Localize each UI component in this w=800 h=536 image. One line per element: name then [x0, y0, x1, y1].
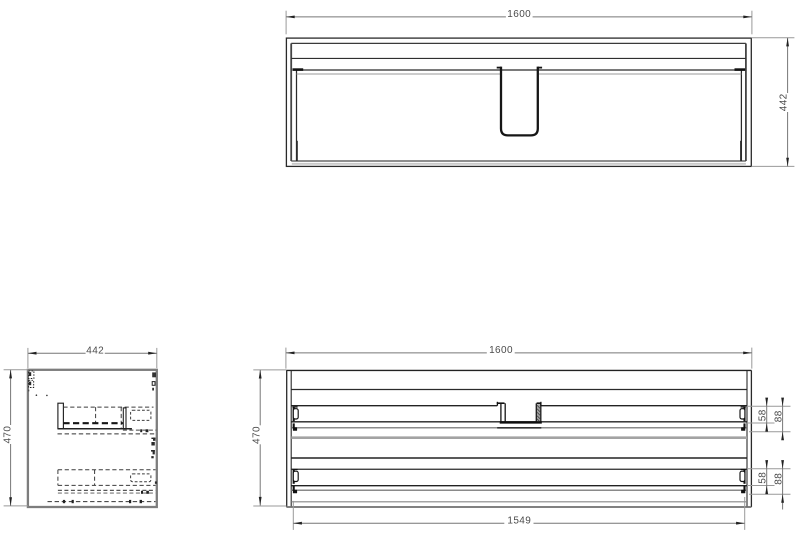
svg-text:470: 470 [2, 426, 13, 444]
svg-text:58: 58 [757, 409, 768, 421]
svg-text:1600: 1600 [489, 345, 513, 356]
svg-text:470: 470 [251, 426, 262, 444]
svg-text:88: 88 [773, 473, 784, 485]
svg-text:1549: 1549 [507, 515, 531, 526]
svg-text:1600: 1600 [507, 9, 531, 20]
svg-text:88: 88 [773, 410, 784, 422]
svg-text:58: 58 [757, 472, 768, 484]
svg-text:442: 442 [86, 345, 104, 356]
svg-text:442: 442 [779, 93, 790, 111]
